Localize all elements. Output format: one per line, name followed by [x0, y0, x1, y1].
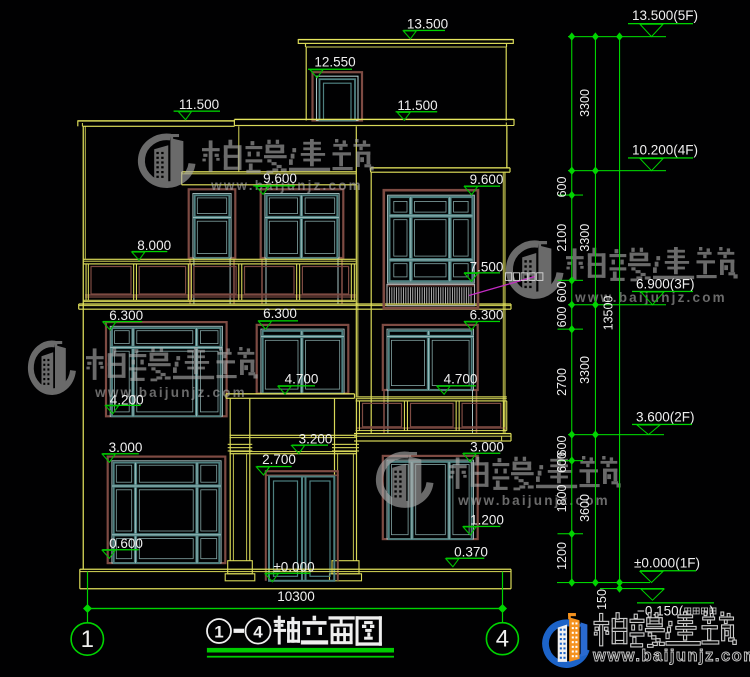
svg-text:600: 600 [555, 177, 569, 198]
svg-text:3300: 3300 [578, 224, 592, 252]
svg-text:6.900(3F): 6.900(3F) [636, 276, 695, 291]
svg-text:13500: 13500 [602, 296, 616, 331]
svg-text:1: 1 [214, 623, 223, 642]
svg-text:4: 4 [496, 626, 509, 653]
svg-text:3.600(2F): 3.600(2F) [636, 409, 695, 424]
svg-text:13.500: 13.500 [407, 16, 448, 31]
svg-text:150: 150 [595, 589, 609, 610]
svg-text:1: 1 [81, 626, 94, 653]
svg-text:12.550: 12.550 [314, 55, 355, 70]
svg-text:2100: 2100 [555, 224, 569, 252]
svg-text:6.300: 6.300 [470, 307, 504, 322]
svg-text:0.600: 0.600 [109, 536, 143, 551]
svg-text:1.200: 1.200 [470, 513, 504, 528]
svg-text:6.300: 6.300 [109, 308, 143, 323]
svg-text:9.600: 9.600 [263, 171, 297, 186]
svg-text:11.500: 11.500 [397, 98, 437, 113]
svg-text:13.500(5F): 13.500(5F) [632, 8, 698, 23]
svg-text:±0.000(1F): ±0.000(1F) [634, 556, 700, 571]
svg-text:1800: 1800 [555, 485, 569, 513]
svg-text:3.000: 3.000 [109, 440, 143, 455]
svg-text:−0.150(: −0.150( [637, 603, 684, 618]
svg-text:±0.000: ±0.000 [273, 560, 314, 575]
svg-text:4: 4 [253, 623, 263, 642]
svg-text:2700: 2700 [555, 368, 569, 396]
svg-text:3.200: 3.200 [299, 431, 333, 446]
svg-text:3600: 3600 [578, 494, 592, 522]
svg-text:2.700: 2.700 [262, 452, 296, 467]
svg-text:7.500: 7.500 [470, 259, 504, 274]
svg-text:8.000: 8.000 [137, 238, 171, 253]
svg-text:6.300: 6.300 [263, 306, 297, 321]
svg-text:1200: 1200 [555, 542, 569, 570]
svg-text:9.600: 9.600 [470, 172, 504, 187]
svg-text:600: 600 [555, 282, 569, 303]
svg-text:11.500: 11.500 [179, 97, 219, 112]
svg-text:4.700: 4.700 [285, 371, 319, 386]
svg-text:3300: 3300 [578, 89, 592, 117]
svg-text:600: 600 [555, 307, 569, 328]
svg-text:600: 600 [555, 452, 569, 473]
svg-text:10.200(4F): 10.200(4F) [632, 143, 698, 158]
svg-text:4.700: 4.700 [444, 371, 478, 386]
svg-text:0.370: 0.370 [454, 545, 488, 560]
svg-text:3.000: 3.000 [470, 439, 504, 454]
svg-text:www.baijunjz.com: www.baijunjz.com [592, 647, 750, 665]
svg-text:10300: 10300 [277, 589, 315, 604]
svg-text:3300: 3300 [578, 356, 592, 384]
